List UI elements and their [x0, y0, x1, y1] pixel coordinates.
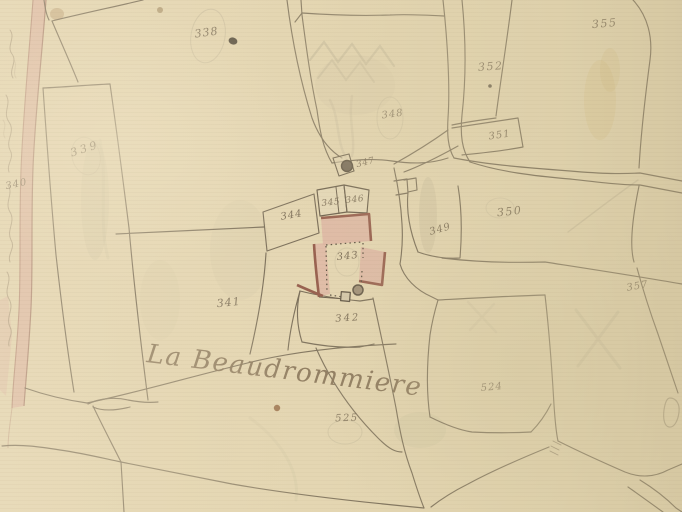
parcel-label-346: 346 [345, 194, 365, 206]
parcel-label-524: 524 [480, 381, 503, 394]
cadastral-map: La Beaudrommiere 33833934034134234334434… [0, 0, 682, 512]
parcel-label-355: 355 [591, 16, 618, 31]
yard-structure [341, 292, 351, 302]
parcel-label-348: 348 [381, 108, 404, 122]
parcel-label-343: 343 [336, 250, 359, 263]
parcel-label-352: 352 [478, 59, 504, 74]
parcel-label-351: 351 [488, 129, 511, 143]
parcel-label-357: 357 [626, 279, 650, 294]
ink-dot [274, 405, 280, 411]
toponym-label: La Beaudrommiere [144, 339, 424, 403]
parcel-label-525: 525 [335, 413, 359, 425]
parcel-label-341: 341 [216, 295, 241, 310]
parcel-label-347: 347 [355, 156, 376, 170]
well-icon [342, 161, 353, 172]
parcel-344-outline [263, 194, 319, 251]
ink-dot [488, 84, 492, 88]
parcel-label-338: 338 [194, 24, 220, 40]
ink-blot [228, 36, 239, 46]
farm-buildings [263, 154, 385, 301]
parcel-label-342: 342 [335, 312, 361, 325]
parcel-label-344: 344 [280, 208, 304, 223]
well-icon [353, 285, 363, 295]
road-band [0, 0, 46, 448]
parcel-label-345: 345 [321, 197, 341, 209]
parcel-label-350: 350 [496, 204, 523, 220]
map-canvas: La Beaudrommiere 33833934034134234334434… [0, 0, 682, 512]
